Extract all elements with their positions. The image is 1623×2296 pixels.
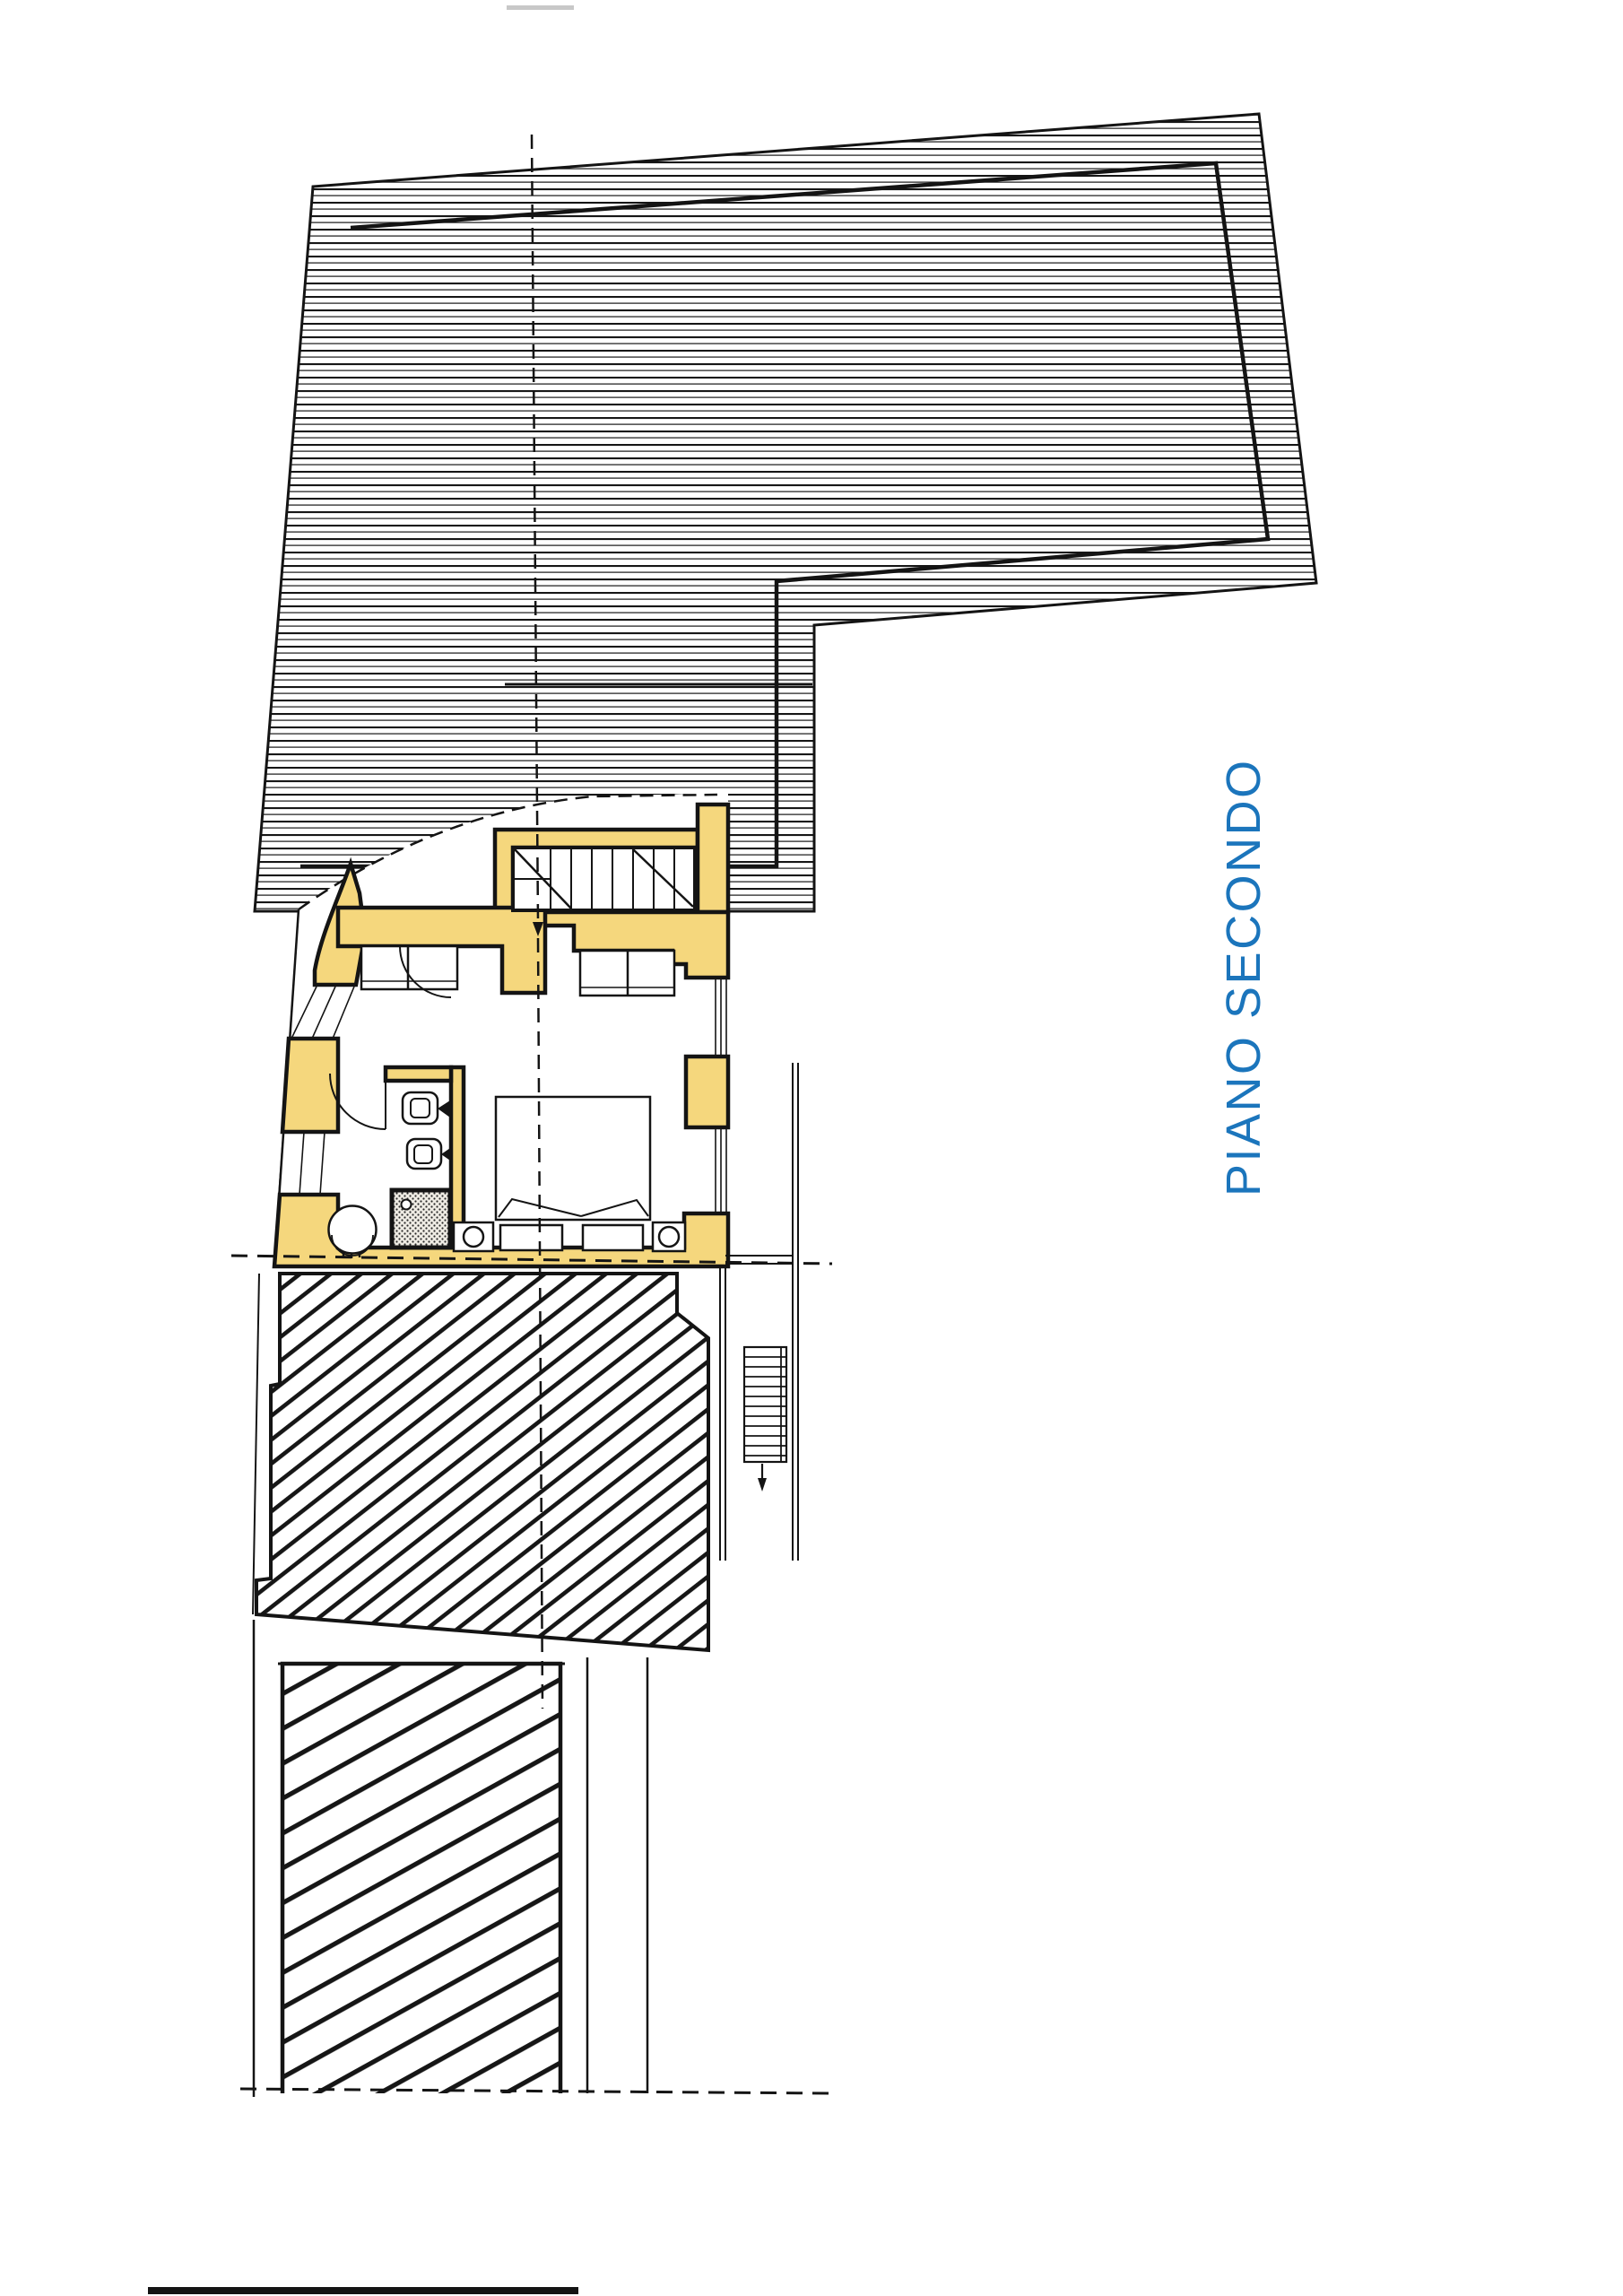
wardrobe-right <box>580 951 674 996</box>
wardrobe-left <box>361 946 457 989</box>
scan-smudge <box>507 5 574 10</box>
right-strip <box>720 1063 798 1561</box>
lower-roof-bottom <box>254 1620 647 2097</box>
wall-bath-top <box>386 1067 451 1081</box>
wall-right-top <box>698 804 728 912</box>
exterior-stair <box>744 1347 786 1492</box>
floor-plan-drawing <box>0 0 1623 2296</box>
lower-roof-mid <box>253 1274 708 1650</box>
down-arrow-icon <box>758 1478 767 1492</box>
stairwell <box>513 848 695 910</box>
nightstand-left <box>454 1222 493 1251</box>
wall-left-pier <box>282 1039 338 1132</box>
scan-edge-artifact <box>148 2287 578 2294</box>
floor-label: PIANO SECONDO <box>1216 758 1271 1196</box>
shower-symbol <box>392 1190 450 1248</box>
nightstand-right <box>653 1222 685 1251</box>
wall-right-pier <box>686 1057 728 1127</box>
sheet: PIANO SECONDO <box>0 0 1623 2296</box>
roof-hatch-area <box>255 114 1316 911</box>
